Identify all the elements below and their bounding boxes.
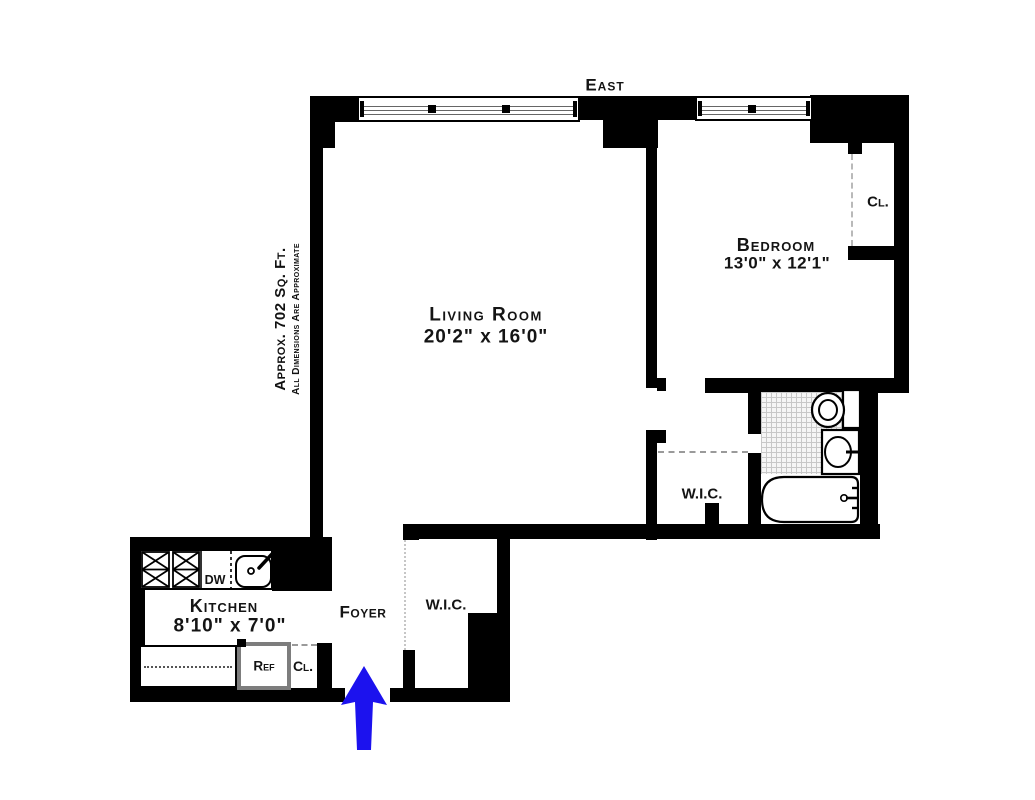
wall-foyer-west-block <box>272 537 332 591</box>
wall-bedroom-right <box>894 143 909 393</box>
bedroom-dims: 13'0" x 12'1" <box>724 255 830 272</box>
kitchen-label: Kitchen <box>190 597 258 615</box>
refrigerator-label: Ref <box>253 659 274 673</box>
wall-wic2-top-jamb <box>403 524 419 540</box>
bathtub-icon <box>762 477 859 522</box>
bedroom-closet-door-dash <box>851 154 853 246</box>
living-room-window-icon <box>357 96 580 122</box>
kitchen-closet-label: Cl. <box>293 659 313 673</box>
wall-closet-bottom <box>848 246 909 260</box>
wall-vestibule-jamb-bot <box>657 430 666 443</box>
foyer-label: Foyer <box>340 604 387 621</box>
wall-living-left <box>310 96 323 542</box>
floor-plan: East Living Room 20'2" x 16'0" Bedroom 1… <box>0 0 1035 800</box>
bathroom-tile-floor <box>761 392 860 474</box>
wall-south-main <box>405 524 880 539</box>
area-note-sqft: Approx. 702 Sq. Ft. <box>272 199 289 439</box>
area-note: Approx. 702 Sq. Ft. All Dimensions Are A… <box>272 199 310 439</box>
wall-wic2-left-stub <box>403 650 415 690</box>
kitchen-closet-door-dash <box>292 644 317 646</box>
bedroom-label: Bedroom <box>737 236 816 254</box>
bedroom-closet-label: Cl. <box>867 195 889 210</box>
wall-kitchen-bottom <box>130 688 345 702</box>
wic2-door-dash <box>404 540 406 650</box>
wall-left-step <box>310 122 335 148</box>
dishwasher-label: DW <box>205 574 226 587</box>
wall-living-bedroom <box>646 96 657 388</box>
kitchen-dims: 8'10" x 7'0" <box>173 617 286 636</box>
bedroom-window-icon <box>695 96 813 121</box>
compass-east-label: East <box>585 77 624 94</box>
living-room-label: Living Room <box>429 306 543 325</box>
wic-foyer-label: W.I.C. <box>426 598 467 613</box>
wall-wic2-corner-block <box>468 613 497 702</box>
wall-vestibule-jamb-top <box>657 378 666 391</box>
wall-closet-top-jamb <box>848 139 862 154</box>
wall-top-right-block <box>810 95 909 143</box>
wic-hall-label: W.I.C. <box>682 487 723 502</box>
entry-arrow-icon <box>341 666 387 750</box>
wall-foyer-west-lower <box>317 643 332 702</box>
wall-bath-right <box>860 392 878 538</box>
wall-mid-pier <box>580 96 695 120</box>
wall-bath-left-upper <box>748 392 761 434</box>
refrigerator-notch <box>237 639 246 647</box>
living-room-dims: 20'2" x 16'0" <box>424 328 549 347</box>
wall-wic2-right <box>497 535 510 702</box>
wall-bedroom-bottom <box>705 378 909 393</box>
counter-dotted-line <box>144 666 232 668</box>
area-note-disclaimer: All Dimensions Are Approximate <box>291 199 302 439</box>
wall-wic1-stub <box>705 503 719 525</box>
wic1-door-dash <box>658 451 748 453</box>
